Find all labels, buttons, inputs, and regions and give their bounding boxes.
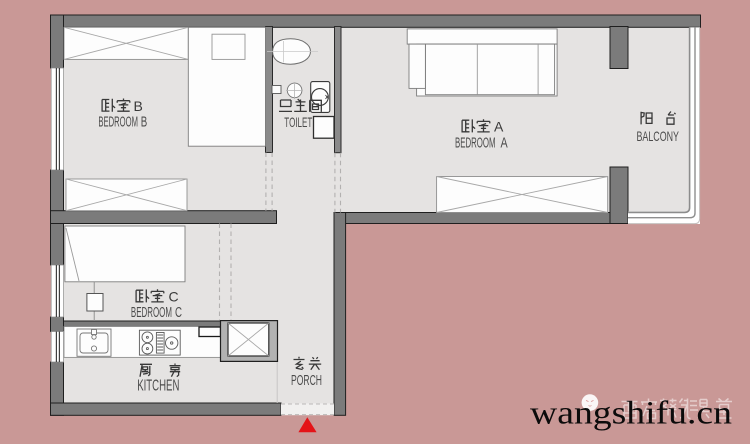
svg-text:B: B (134, 98, 143, 114)
svg-text:TOILET: TOILET (284, 114, 312, 130)
svg-text:KITCHEN: KITCHEN (137, 378, 179, 395)
svg-text:C: C (169, 289, 179, 305)
svg-text:C: C (175, 305, 182, 321)
svg-text:PORCH: PORCH (291, 372, 322, 389)
svg-text:BEDROOM: BEDROOM (455, 134, 496, 151)
svg-text:BEDROOM: BEDROOM (98, 114, 138, 131)
svg-text:wangshifu.cn: wangshifu.cn (530, 395, 732, 431)
svg-text:BALCONY: BALCONY (637, 128, 680, 144)
svg-text:B: B (141, 114, 148, 131)
svg-text:BEDROOM: BEDROOM (131, 305, 172, 321)
svg-text:A: A (494, 119, 504, 135)
svg-text:A: A (501, 134, 508, 151)
